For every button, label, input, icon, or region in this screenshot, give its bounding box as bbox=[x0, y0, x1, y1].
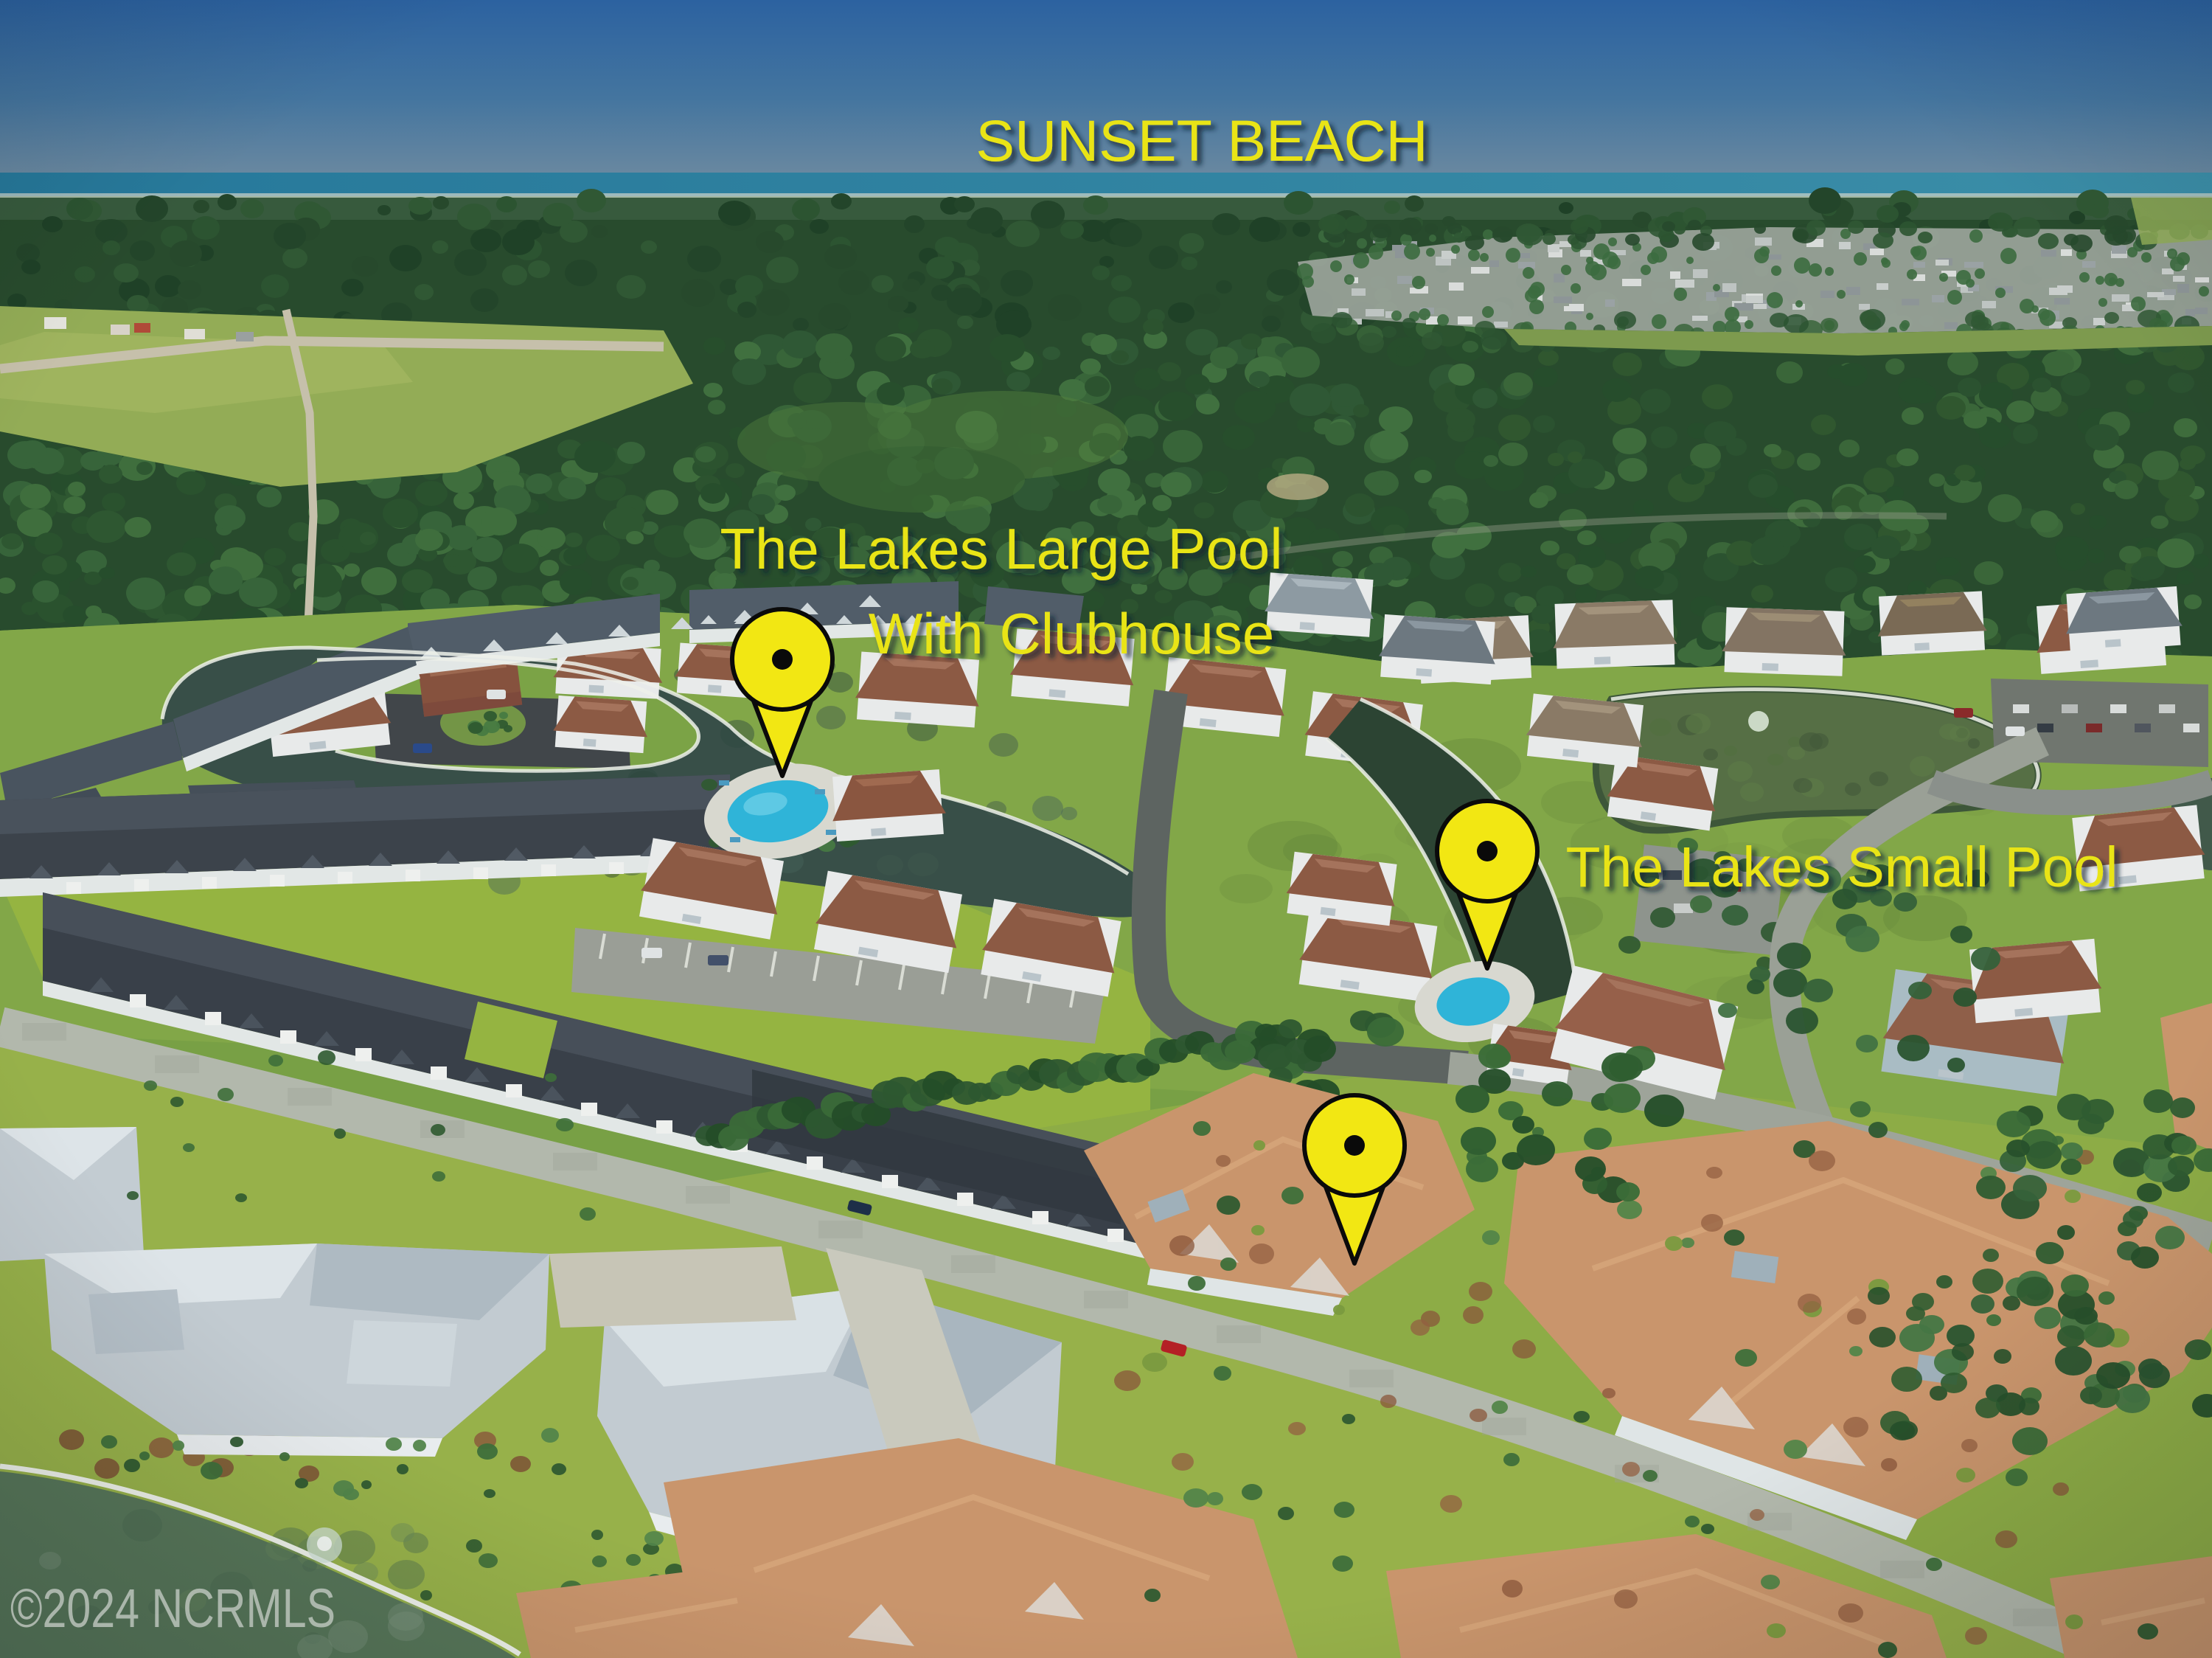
svg-text:The Lakes Large Pool: The Lakes Large Pool bbox=[720, 516, 1282, 581]
svg-text:The Lakes Small Pool: The Lakes Small Pool bbox=[1566, 836, 2118, 899]
svg-text:SUNSET BEACH: SUNSET BEACH bbox=[975, 108, 1427, 173]
svg-text:©2024 NCRMLS: ©2024 NCRMLS bbox=[10, 1578, 335, 1639]
svg-text:With Clubhouse: With Clubhouse bbox=[869, 601, 1275, 666]
